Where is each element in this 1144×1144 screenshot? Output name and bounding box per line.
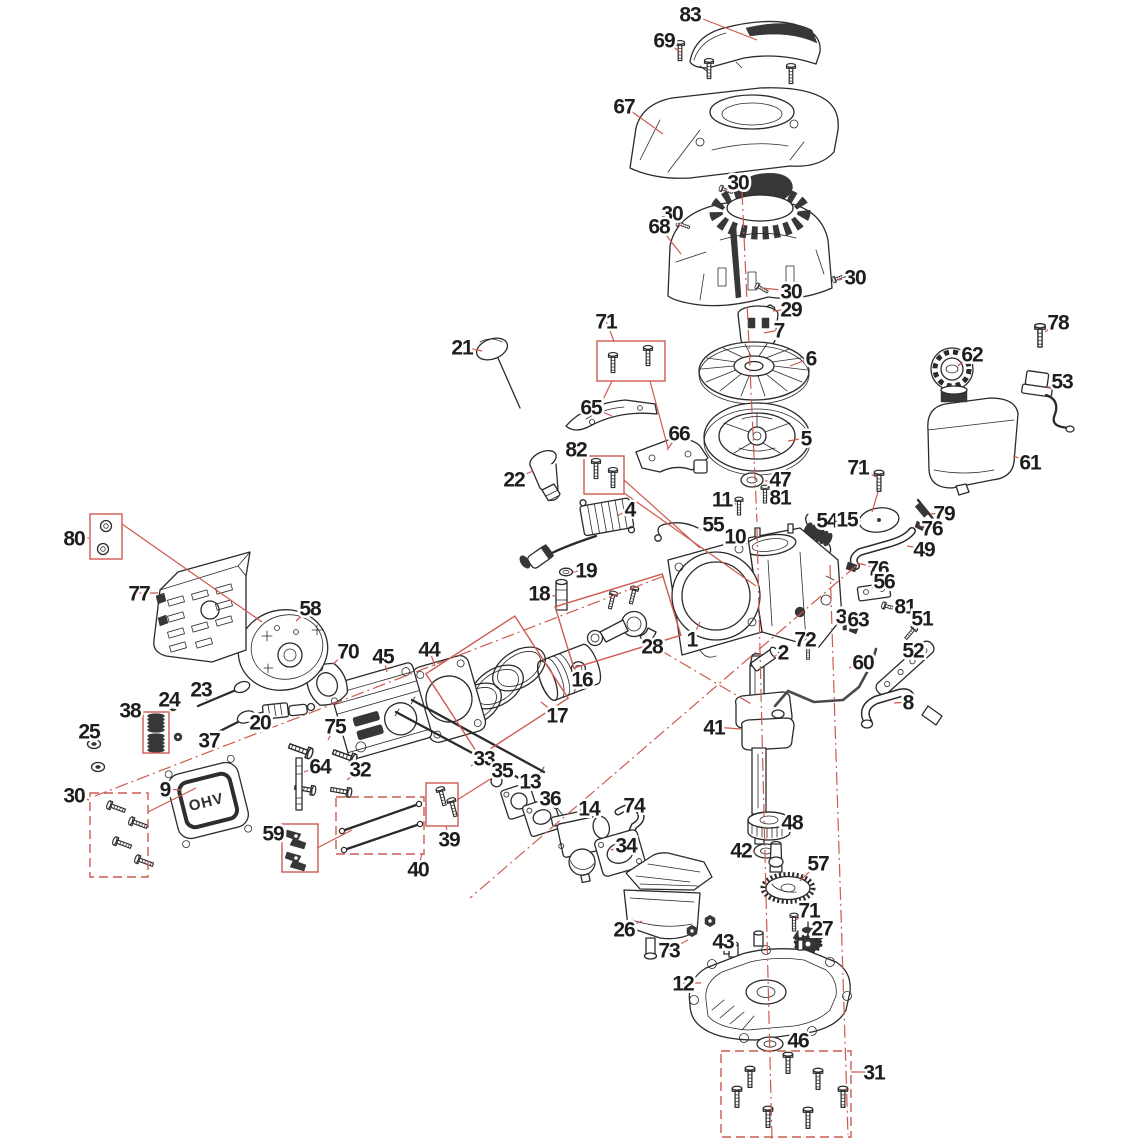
callout-34: 34 xyxy=(615,835,638,858)
callout-14: 14 xyxy=(578,798,601,821)
callout-37: 37 xyxy=(198,730,220,753)
callout-20: 20 xyxy=(249,712,271,735)
callout-74: 74 xyxy=(623,795,646,818)
callout-4: 4 xyxy=(625,499,637,522)
group-box-40 xyxy=(336,797,424,854)
callout-27: 27 xyxy=(811,918,833,941)
part-camshaft xyxy=(763,842,813,902)
part-valve-cover: OHV xyxy=(164,754,253,848)
callout-6: 6 xyxy=(806,348,817,371)
cover-bolts-30 xyxy=(106,800,155,868)
callout-3: 3 xyxy=(836,606,847,629)
callout-59: 59 xyxy=(262,823,284,846)
callout-28: 28 xyxy=(641,636,664,659)
callout-60: 60 xyxy=(852,652,874,675)
pan-bolts-31 xyxy=(732,1052,848,1128)
part-flywheel-fan xyxy=(699,342,809,404)
callout-80: 80 xyxy=(63,528,85,551)
callout-49: 49 xyxy=(913,539,935,562)
callout-53: 53 xyxy=(1051,371,1073,394)
callout-2: 2 xyxy=(778,642,789,665)
part-fuel-tank xyxy=(928,386,1018,495)
callout-31: 31 xyxy=(863,1062,886,1085)
exploded-parts-diagram: OHV xyxy=(0,0,1144,1144)
callout-44: 44 xyxy=(418,639,441,662)
washers-80 xyxy=(98,521,112,555)
valve-springs-38 xyxy=(148,714,165,753)
callout-64: 64 xyxy=(309,756,332,779)
valve-seals-25 xyxy=(88,740,105,772)
callout-38: 38 xyxy=(119,700,142,723)
callout-55: 55 xyxy=(702,514,725,537)
part-push-rods xyxy=(339,801,422,852)
callout-36: 36 xyxy=(539,788,561,811)
callout-56: 56 xyxy=(873,571,895,594)
callout-24: 24 xyxy=(158,689,181,712)
boxed-bolts-82 xyxy=(592,459,618,488)
callout-7: 7 xyxy=(774,320,785,343)
part-muffler-guard xyxy=(154,552,250,662)
callout-51: 51 xyxy=(911,608,934,631)
group-box-30 xyxy=(90,793,148,877)
part-air-cleaner xyxy=(624,853,763,959)
group-box-71 xyxy=(597,341,665,381)
callout-11: 11 xyxy=(712,489,734,512)
callout-83: 83 xyxy=(679,4,701,27)
callout-73: 73 xyxy=(658,940,680,963)
callout-82: 82 xyxy=(565,439,587,462)
part-recoil-starter xyxy=(668,173,832,305)
callout-68: 68 xyxy=(648,216,671,239)
callout-57: 57 xyxy=(807,853,829,876)
rocker-pivots-39 xyxy=(436,786,460,817)
callout-71: 71 xyxy=(847,457,870,480)
callout-35: 35 xyxy=(491,760,514,783)
callout-21: 21 xyxy=(451,337,474,360)
callout-41: 41 xyxy=(703,717,726,740)
group-box-82 xyxy=(584,456,624,494)
callout-45: 45 xyxy=(372,646,395,669)
callout-39: 39 xyxy=(438,829,460,852)
callout-13: 13 xyxy=(519,771,541,794)
callout-76: 76 xyxy=(921,518,943,541)
callout-63: 63 xyxy=(847,609,869,632)
callout-40: 40 xyxy=(407,859,429,882)
callout-1: 1 xyxy=(687,629,699,652)
part-rocker-arms xyxy=(285,830,306,871)
callout-15: 15 xyxy=(836,509,859,532)
callout-29: 29 xyxy=(780,299,802,322)
callout-65: 65 xyxy=(580,397,603,420)
callout-25: 25 xyxy=(78,721,101,744)
callout-46: 46 xyxy=(787,1030,809,1053)
callout-69: 69 xyxy=(653,30,675,53)
callout-71: 71 xyxy=(595,311,618,334)
part-starter-pulley xyxy=(704,403,810,475)
callout-23: 23 xyxy=(190,679,212,702)
callout-72: 72 xyxy=(794,629,816,652)
part-oil-plug xyxy=(527,447,560,501)
part-starter-cup xyxy=(738,306,778,347)
callout-58: 58 xyxy=(299,598,322,621)
callout-61: 61 xyxy=(1019,452,1042,475)
part-dipstick xyxy=(474,334,520,408)
callout-12: 12 xyxy=(672,973,694,996)
callout-32: 32 xyxy=(349,759,371,782)
callout-22: 22 xyxy=(503,469,525,492)
callout-81: 81 xyxy=(769,487,792,510)
boxed-bolts-71 xyxy=(609,346,653,373)
part-oil-pan xyxy=(689,940,851,1043)
callout-26: 26 xyxy=(613,919,635,942)
diagram-canvas: OHV xyxy=(0,0,1144,1144)
callout-67: 67 xyxy=(613,96,635,119)
callout-52: 52 xyxy=(902,640,924,663)
callout-9: 9 xyxy=(160,779,171,802)
callout-labels: 8369673030683030297176786253216566561822… xyxy=(63,4,1073,1085)
callout-19: 19 xyxy=(575,560,597,583)
callout-62: 62 xyxy=(961,344,983,367)
callout-5: 5 xyxy=(801,428,813,451)
part-ignition-coil xyxy=(518,492,635,570)
callout-18: 18 xyxy=(528,583,551,606)
callout-78: 78 xyxy=(1047,312,1070,335)
callout-8: 8 xyxy=(903,692,915,715)
callout-30: 30 xyxy=(727,172,749,195)
callout-75: 75 xyxy=(324,716,347,739)
callout-77: 77 xyxy=(128,583,150,606)
callout-66: 66 xyxy=(668,423,690,446)
callout-10: 10 xyxy=(724,526,746,549)
callout-30: 30 xyxy=(63,785,85,808)
callout-43: 43 xyxy=(712,931,734,954)
callout-16: 16 xyxy=(571,669,593,692)
callout-17: 17 xyxy=(546,705,568,728)
callout-48: 48 xyxy=(781,812,804,835)
callout-42: 42 xyxy=(730,840,752,863)
callout-70: 70 xyxy=(337,641,359,664)
bolt-71-right xyxy=(874,470,884,491)
callout-30: 30 xyxy=(844,267,866,290)
